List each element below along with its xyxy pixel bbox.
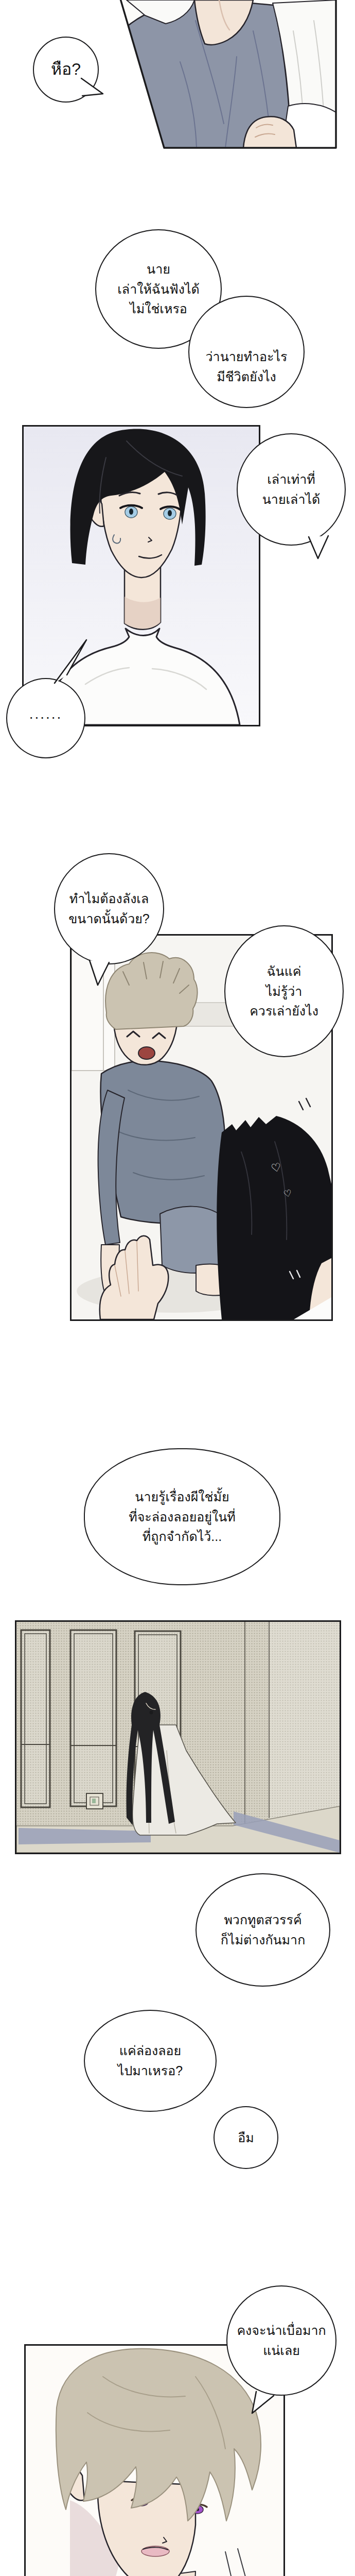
open-mouth	[138, 1047, 155, 1059]
bubble-text-line: เล่าเท่าที่	[267, 469, 315, 489]
bubble-text-line: แน่เลย	[263, 2341, 300, 2361]
blond-tee	[101, 1061, 225, 1224]
bubble-tail	[78, 77, 106, 100]
bubble-text-line: ควรเล่ายังไง	[250, 1001, 318, 1021]
ghost-eye	[150, 1711, 153, 1715]
bubble-text-line: คงจะน่าเบื่อมาก	[237, 2320, 326, 2341]
panel-1	[118, 0, 337, 149]
bubble-text-line: ว่านายทำอะไร	[206, 347, 288, 367]
bubble-text-line: หือ?	[51, 57, 81, 82]
speech-bubble: ......	[6, 678, 85, 758]
panel-4-art	[16, 1622, 340, 1853]
mouth	[141, 2546, 169, 2556]
bubble-text-line: นาย	[147, 259, 170, 279]
bubble-tail	[85, 958, 115, 988]
bubble-text-line: แค่ล่องลอย	[119, 2041, 181, 2061]
speech-bubble: ทำไมต้องลังเล ขนาดนั้นด้วย?	[54, 853, 164, 964]
bubble-text-line: อืม	[238, 2128, 254, 2148]
bubble-text-line: นายรู้เรื่องผีใช่มั้ย	[135, 1487, 229, 1507]
bubble-text-line: ทำไมต้องลังเล	[69, 889, 149, 909]
speech-bubble: นายรู้เรื่องผีใช่มั้ย ที่จะล่องลอยอยู่ใน…	[84, 1448, 280, 1585]
bubble-text-line: มีชีวิตยังไง	[217, 367, 276, 387]
comic-page: ♡ ♡	[0, 0, 355, 2576]
panel-1-art	[118, 0, 337, 149]
bubble-text-line: ......	[29, 703, 63, 725]
speech-bubble: พวกทูตสวรรค์ ก็ไม่ต่างกันมาก	[196, 1873, 330, 1987]
bubble-text-line: เล่าให้ฉันฟังได้	[117, 279, 199, 299]
bubble-text-line: ก็ไม่ต่างกันมาก	[221, 1930, 306, 1950]
speech-bubble: ว่านายทำอะไร มีชีวิตยังไง	[188, 296, 305, 408]
bubble-tail	[49, 637, 91, 686]
speech-bubble: อืม	[214, 2106, 278, 2169]
bubble-text-line: พวกทูตสวรรค์	[224, 1910, 301, 1930]
bubble-text-line: นายเล่าได้	[262, 489, 321, 510]
bubble-tail	[250, 2391, 278, 2416]
bubble-text-line: ขนาดนั้นด้วย?	[68, 909, 149, 929]
bubble-text-line: ไม่รู้ว่า	[266, 981, 303, 1002]
speech-bubble: ฉันแค่ ไม่รู้ว่า ควรเล่ายังไง	[224, 925, 344, 1057]
speech-bubble: เล่าเท่าที่ นายเล่าได้	[237, 433, 346, 546]
bubble-text-line: ฉันแค่	[267, 961, 301, 981]
bubble-tail	[305, 535, 333, 562]
speech-bubble: คงจะน่าเบื่อมาก แน่เลย	[226, 2285, 336, 2396]
bubble-text-line: ที่จะล่องลอยอยู่ในที่	[129, 1507, 236, 1527]
bubble-text-line: ไปมาเหรอ?	[118, 2061, 183, 2081]
speech-bubble: แค่ล่องลอย ไปมาเหรอ?	[84, 2010, 217, 2112]
bubble-text-line: ไม่ใช่เหรอ	[130, 299, 187, 319]
panel-4	[15, 1620, 341, 1854]
bubble-text-line: ที่ถูกจำกัดไว้...	[143, 1527, 222, 1547]
